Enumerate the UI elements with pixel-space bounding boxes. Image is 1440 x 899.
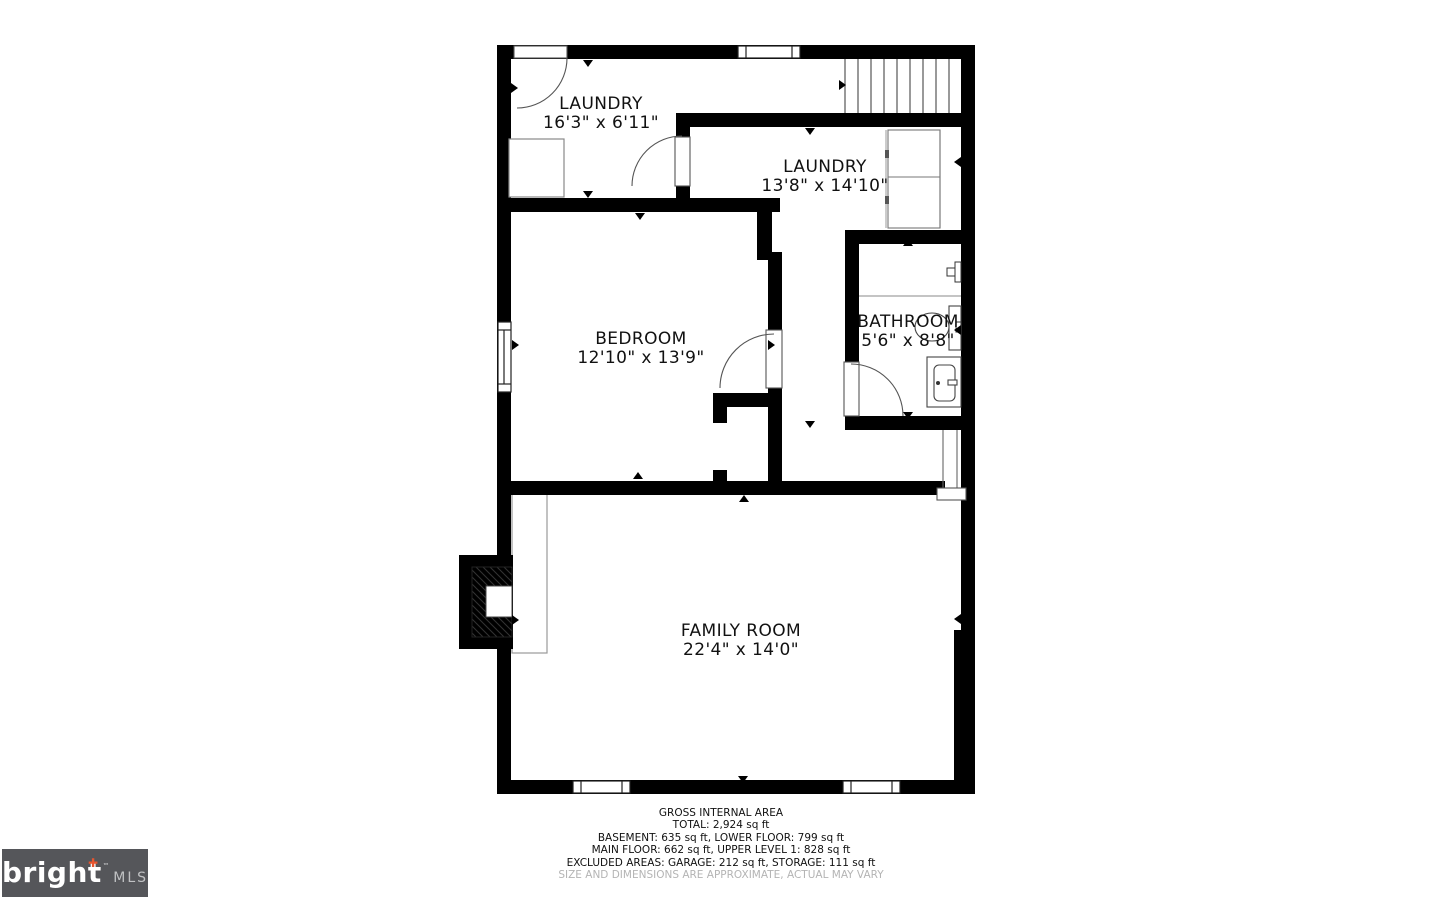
wall-bathroom-left-upper	[845, 230, 859, 364]
wall-outer-top	[497, 45, 975, 59]
wall-bedroom-top	[503, 198, 780, 212]
logo-brand-text: bright	[2, 849, 102, 897]
logo-plus-icon: ✚	[88, 856, 98, 870]
wall-bedroom-right-upper	[757, 198, 772, 260]
chimney-breast-outline	[512, 490, 547, 653]
wall-stairs-bottom	[678, 113, 975, 127]
wall-outer-bottom	[497, 780, 975, 794]
total-area: TOTAL: 2,924 sq ft	[558, 819, 883, 831]
floor-plan-drawing: LAUNDRY 16'3" x 6'11" LAUNDRY 13'8" x 14…	[0, 0, 1440, 899]
washer-dryer-stack	[888, 130, 940, 228]
laundry2-label: LAUNDRY	[783, 157, 867, 177]
basement-lower-area: BASEMENT: 635 sq ft, LOWER FLOOR: 799 sq…	[558, 832, 883, 844]
fireplace	[472, 567, 512, 637]
window-bottom-left	[573, 781, 630, 793]
familyroom-label: FAMILY ROOM	[681, 621, 801, 641]
gross-internal-area-heading: GROSS INTERNAL AREA	[558, 807, 883, 819]
door-bedroom	[720, 330, 782, 388]
toilet-icon	[927, 357, 961, 407]
laundry1-dims: 16'3" x 6'11"	[543, 113, 659, 133]
bathroom-label: BATHROOM	[857, 312, 959, 332]
wall-door-jamb-upper	[676, 113, 690, 139]
shower-head-icon	[947, 262, 961, 282]
laundry2-dims: 13'8" x 14'10"	[761, 176, 888, 196]
bedroom-dims: 12'10" x 13'9"	[577, 348, 704, 368]
bright-mls-logo: bright ✚ ™ MLS	[2, 849, 148, 897]
wall-bathroom-bottom	[845, 416, 975, 430]
laundry2-appliances	[885, 130, 940, 228]
stairs	[845, 59, 949, 113]
window-bottom-right	[843, 781, 900, 793]
excluded-areas: EXCLUDED AREAS: GARAGE: 212 sq ft, STORA…	[558, 857, 883, 869]
logo-suffix-text: MLS	[113, 854, 148, 899]
wall-bedroom-right-mid	[768, 252, 782, 332]
laundry1-label: LAUNDRY	[559, 94, 643, 114]
wall-bedroom-stub	[713, 470, 727, 483]
wall-bedroom-closet-v	[713, 393, 727, 423]
window-top-wall	[738, 46, 800, 58]
floorplan-page: LAUNDRY 16'3" x 6'11" LAUNDRY 13'8" x 14…	[0, 0, 1440, 899]
wall-familyroom-top	[497, 481, 945, 495]
door-bathroom	[844, 362, 903, 416]
disclaimer: SIZE AND DIMENSIONS ARE APPROXIMATE, ACT…	[558, 869, 883, 881]
wall-right-notch	[954, 630, 975, 794]
fireplace-firebox	[486, 586, 512, 617]
door-laundry1-to-laundry2	[632, 136, 690, 186]
main-upper-area: MAIN FLOOR: 662 sq ft, UPPER LEVEL 1: 82…	[558, 844, 883, 856]
logo-trademark: ™	[103, 862, 110, 870]
familyroom-dims: 22'4" x 14'0"	[683, 640, 799, 660]
laundry1-appliance	[509, 139, 564, 197]
area-summary: GROSS INTERNAL AREA TOTAL: 2,924 sq ft B…	[558, 807, 883, 881]
bedroom-label: BEDROOM	[595, 329, 687, 349]
bathroom-dims: 5'6" x 8'8"	[861, 331, 955, 351]
window-bedroom-left	[498, 322, 511, 392]
bright-mls-logo-inner: bright ✚ ™ MLS	[2, 849, 148, 897]
